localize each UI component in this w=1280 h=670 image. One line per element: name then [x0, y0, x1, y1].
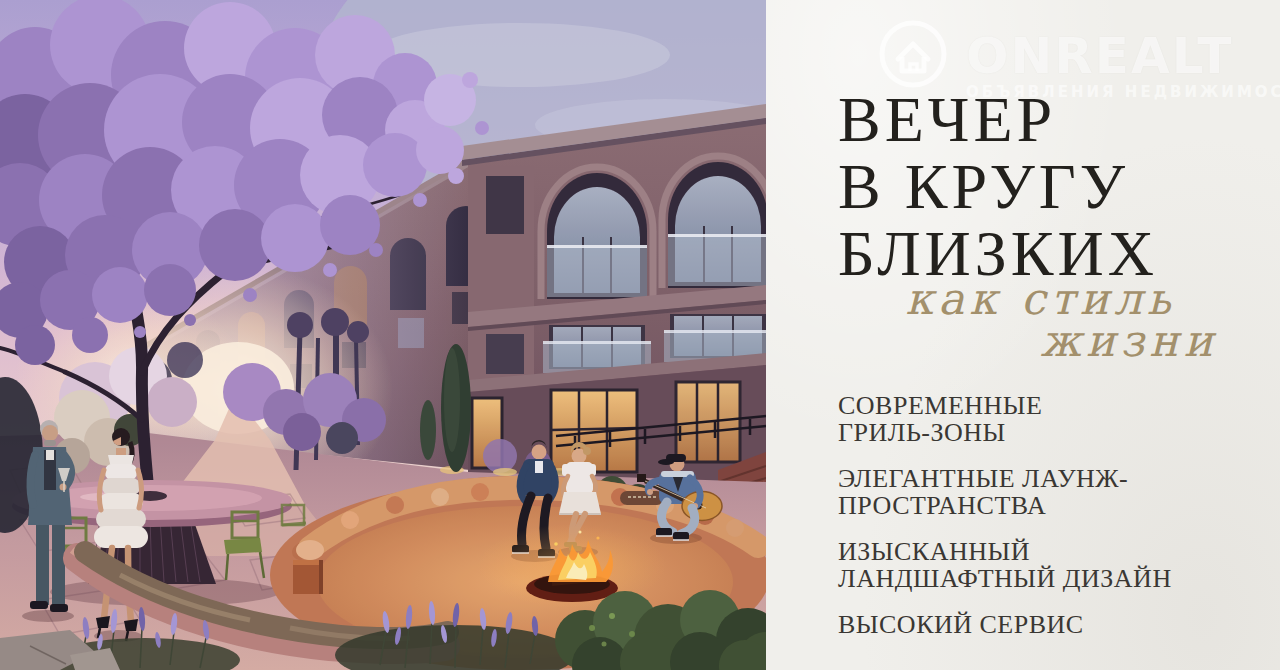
feature-list: СОВРЕМЕННЫЕ ГРИЛЬ-ЗОНЫ ЭЛЕГАНТНЫЕ ЛАУНЖ-… — [838, 392, 1172, 657]
script-caption: как стиль жизни — [906, 278, 1218, 362]
feature-landscape-design: ИЗЫСКАННЫЙ ЛАНДШАФТНЫЙ ДИЗАЙН — [838, 538, 1172, 592]
feature-line: ЭЛЕГАНТНЫЕ ЛАУНЖ- — [838, 465, 1172, 492]
headline-line-1: ВЕЧЕР — [838, 86, 1158, 153]
feature-line: ВЫСОКИЙ СЕРВИС — [838, 611, 1172, 638]
script-line-1: как стиль — [906, 278, 1176, 320]
feature-line: ГРИЛЬ-ЗОНЫ — [838, 419, 1172, 446]
house-logo-icon — [876, 17, 950, 91]
feature-grill-zones: СОВРЕМЕННЫЕ ГРИЛЬ-ЗОНЫ — [838, 392, 1172, 446]
feature-line: СОВРЕМЕННЫЕ — [838, 392, 1172, 419]
color-cast — [0, 0, 766, 670]
brand-name: ONREALT — [966, 33, 1280, 79]
feature-lounge-spaces: ЭЛЕГАНТНЫЕ ЛАУНЖ- ПРОСТРАНСТВА — [838, 465, 1172, 519]
photo-area — [0, 0, 766, 670]
feature-line: ПРОСТРАНСТВА — [838, 492, 1172, 519]
feature-line: ИЗЫСКАННЫЙ — [838, 538, 1172, 565]
courtyard-rendering — [0, 0, 766, 670]
script-line-2: жизни — [906, 320, 1218, 362]
feature-line: ЛАНДШАФТНЫЙ ДИЗАЙН — [838, 565, 1172, 592]
promo-banner: ONREALT ОБЪЯВЛЕНИЯ НЕДВИЖИМОСТИ ВЕЧЕР В … — [0, 0, 1280, 670]
headline-line-2: В КРУГУ — [838, 153, 1158, 220]
feature-high-service: ВЫСОКИЙ СЕРВИС — [838, 611, 1172, 638]
headline: ВЕЧЕР В КРУГУ БЛИЗКИХ — [838, 86, 1158, 287]
text-panel: ONREALT ОБЪЯВЛЕНИЯ НЕДВИЖИМОСТИ ВЕЧЕР В … — [766, 0, 1280, 670]
